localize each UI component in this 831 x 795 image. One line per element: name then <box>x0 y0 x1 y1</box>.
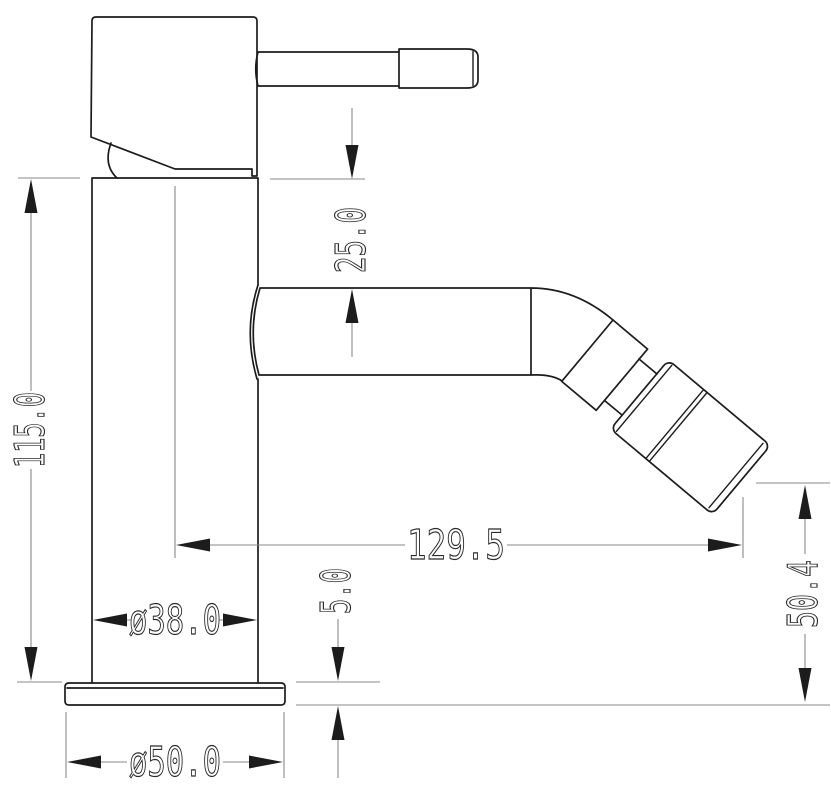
arrowhead-left <box>67 756 101 769</box>
dim-label-body-height: 115.0 <box>6 392 54 468</box>
dim-spout-reach: 129.5 <box>176 497 743 569</box>
dim-base-diameter: ø50.0 <box>66 712 284 786</box>
dim-handle-to-spout-drop: 25.0 <box>270 108 375 357</box>
dim-base-thickness: 5.0 <box>296 568 380 778</box>
arrowhead-up <box>799 485 812 519</box>
dim-base-thickness-lines <box>296 619 380 778</box>
arrowhead-down <box>332 647 345 681</box>
spout-arm <box>250 285 613 381</box>
aerator-nozzle <box>611 360 771 514</box>
technical-drawing: 115.0 25.0 129.5 ø38.0 ø50.0 <box>0 0 831 795</box>
drawing-canvas: 115.0 25.0 129.5 ø38.0 ø50.0 <box>0 0 831 795</box>
knurled-grip <box>399 49 478 88</box>
knurled-grip-body <box>399 49 478 88</box>
arrowhead-left <box>176 539 210 552</box>
arrowhead-right <box>223 614 257 627</box>
dim-body-diameter: ø38.0 <box>93 596 257 644</box>
arrowhead-up <box>25 179 38 213</box>
arrowhead-up <box>346 289 359 323</box>
outlet-neck <box>605 359 658 415</box>
handle-housing <box>91 17 257 178</box>
aerator-detail-lines <box>615 364 764 509</box>
outlet-collar <box>562 320 648 410</box>
dim-outlet-height: 50.4 <box>756 483 830 702</box>
handle-lever <box>256 52 399 86</box>
dim-label-handle-drop: 25.0 <box>327 207 375 273</box>
base-plate <box>65 683 285 705</box>
dim-label-body-diameter: ø38.0 <box>129 596 221 644</box>
arrowhead-down <box>25 647 38 681</box>
arrowhead-right <box>708 539 742 552</box>
dim-label-spout-reach: 129.5 <box>407 521 505 569</box>
arrowhead-left <box>93 614 127 627</box>
dim-label-base-thickness: 5.0 <box>312 568 360 614</box>
dimensions: 115.0 25.0 129.5 ø38.0 ø50.0 <box>6 108 830 786</box>
arrowhead-right <box>249 756 283 769</box>
dim-label-outlet-height: 50.4 <box>779 560 827 628</box>
dim-body-height: 115.0 <box>6 178 80 682</box>
arrowhead-up <box>332 706 345 740</box>
dim-label-base-diameter: ø50.0 <box>129 738 221 786</box>
arrowhead-down <box>799 668 812 702</box>
arrowhead-down <box>346 145 359 179</box>
aerator-body <box>611 360 771 514</box>
